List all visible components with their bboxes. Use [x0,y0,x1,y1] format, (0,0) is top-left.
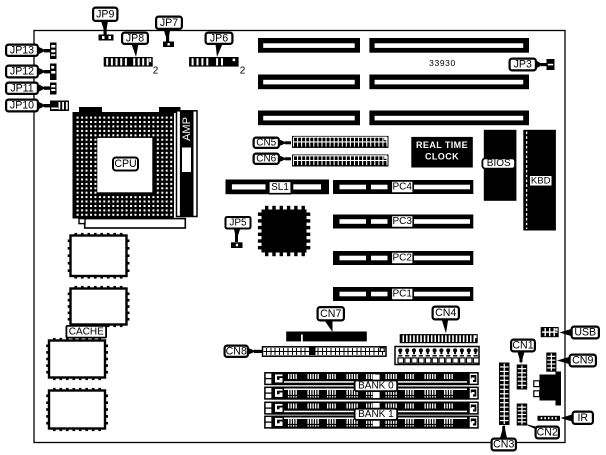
svg-text:2: 2 [153,66,159,77]
svg-text:CN5: CN5 [256,137,276,148]
svg-text:KBD: KBD [531,175,551,186]
svg-text:IR: IR [577,412,588,424]
svg-text:BIOS: BIOS [487,158,511,169]
svg-text:PC1: PC1 [393,289,413,300]
svg-text:SL1: SL1 [271,182,289,193]
svg-text:CN4: CN4 [435,307,456,319]
svg-text:2: 2 [240,66,246,77]
svg-text:AMP: AMP [181,117,193,141]
svg-text:CN9: CN9 [572,355,593,367]
svg-text:CN7: CN7 [320,308,341,320]
svg-text:REAL TIME: REAL TIME [416,140,468,150]
svg-text:CN2: CN2 [537,427,558,439]
svg-text:PC2: PC2 [393,253,413,264]
svg-text:BANK 1: BANK 1 [358,409,394,420]
svg-text:USB: USB [574,327,596,339]
svg-text:CN1: CN1 [512,340,533,352]
svg-text:JP3: JP3 [514,59,532,71]
svg-text:JP11: JP11 [10,82,33,94]
svg-text:JP10: JP10 [10,100,34,112]
svg-text:PC4: PC4 [393,182,413,193]
svg-text:33930: 33930 [429,58,456,68]
svg-text:PC3: PC3 [393,216,413,227]
svg-text:JP9: JP9 [96,8,114,20]
svg-text:CN6: CN6 [256,153,276,164]
svg-text:CACHE: CACHE [69,326,104,337]
svg-text:JP13: JP13 [10,44,34,56]
svg-text:CN3: CN3 [493,439,514,451]
svg-text:JP8: JP8 [126,32,144,44]
svg-text:BANK 0: BANK 0 [358,380,394,391]
svg-text:CN8: CN8 [226,345,247,357]
svg-text:JP5: JP5 [229,217,247,228]
svg-text:JP7: JP7 [160,17,178,29]
svg-text:JP12: JP12 [10,66,34,78]
svg-text:JP6: JP6 [210,32,228,44]
svg-text:CPU: CPU [114,158,136,170]
svg-text:CLOCK: CLOCK [425,152,459,162]
